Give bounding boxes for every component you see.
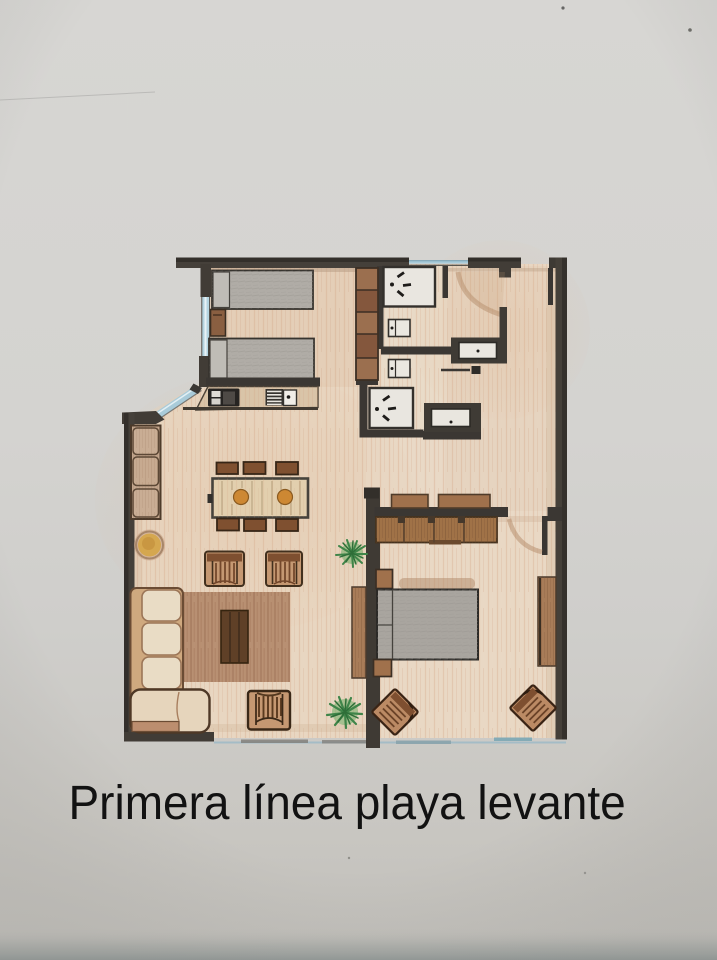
svg-text:Primera línea playa levante: Primera línea playa levante — [69, 775, 626, 829]
